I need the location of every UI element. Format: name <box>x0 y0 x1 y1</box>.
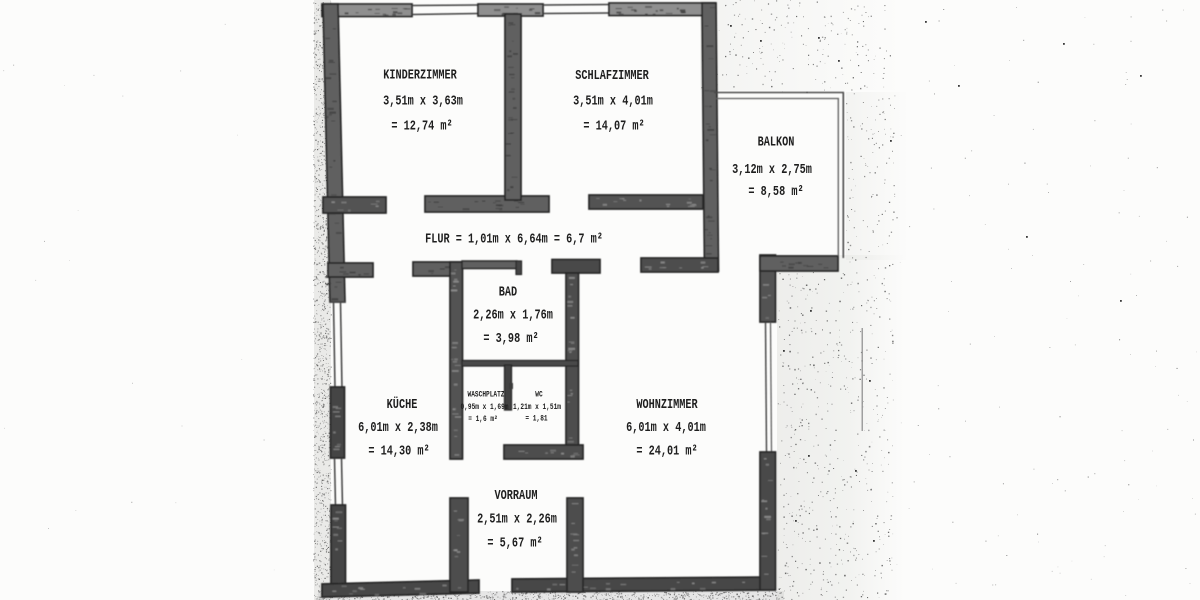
svg-text:WASCHPLATZ: WASCHPLATZ <box>468 391 505 400</box>
svg-text:1,21m x 1,51m: 1,21m x 1,51m <box>513 403 562 412</box>
svg-text:2,51m x 2,26m: 2,51m x 2,26m <box>477 511 557 527</box>
svg-text:6,01m x 2,38m: 6,01m x 2,38m <box>358 419 438 435</box>
svg-text:= 1,81: = 1,81 <box>525 415 547 424</box>
svg-text:3,51m x 3,63m: 3,51m x 3,63m <box>383 93 463 109</box>
svg-text:= 14,30 m²: = 14,30 m² <box>368 443 429 459</box>
svg-text:KINDERZIMMER: KINDERZIMMER <box>383 67 457 83</box>
svg-text:= 8,58 m²: = 8,58 m² <box>748 183 803 199</box>
svg-text:3,12m x 2,75m: 3,12m x 2,75m <box>732 161 812 177</box>
svg-text:= 5,67 m²: = 5,67 m² <box>487 535 542 551</box>
svg-text:= 24,01 m²: = 24,01 m² <box>636 443 697 459</box>
svg-text:WC: WC <box>535 391 543 400</box>
svg-text:KÜCHE: KÜCHE <box>387 394 418 412</box>
svg-text:FLUR = 1,01m x 6,64m = 6,7 m²: FLUR = 1,01m x 6,64m = 6,7 m² <box>425 231 603 247</box>
svg-text:6,01m x 4,01m: 6,01m x 4,01m <box>626 419 706 435</box>
svg-text:WOHNZIMMER: WOHNZIMMER <box>636 396 698 412</box>
svg-text:SCHLAFZIMMER: SCHLAFZIMMER <box>575 67 649 83</box>
svg-text:= 14,07 m²: = 14,07 m² <box>583 118 644 134</box>
svg-text:0,95m x 1,69m: 0,95m x 1,69m <box>461 403 510 412</box>
svg-text:= 12,74 m²: = 12,74 m² <box>391 118 452 134</box>
svg-text:BALKON: BALKON <box>758 134 795 150</box>
svg-text:= 3,98 m²: = 3,98 m² <box>483 330 538 346</box>
svg-text:BAD: BAD <box>499 284 517 300</box>
svg-text:3,51m x 4,01m: 3,51m x 4,01m <box>573 93 653 109</box>
svg-text:2,26m x 1,76m: 2,26m x 1,76m <box>473 307 553 323</box>
svg-text:= 1,6 m²: = 1,6 m² <box>468 414 498 424</box>
svg-text:VORRAUM: VORRAUM <box>495 487 538 503</box>
